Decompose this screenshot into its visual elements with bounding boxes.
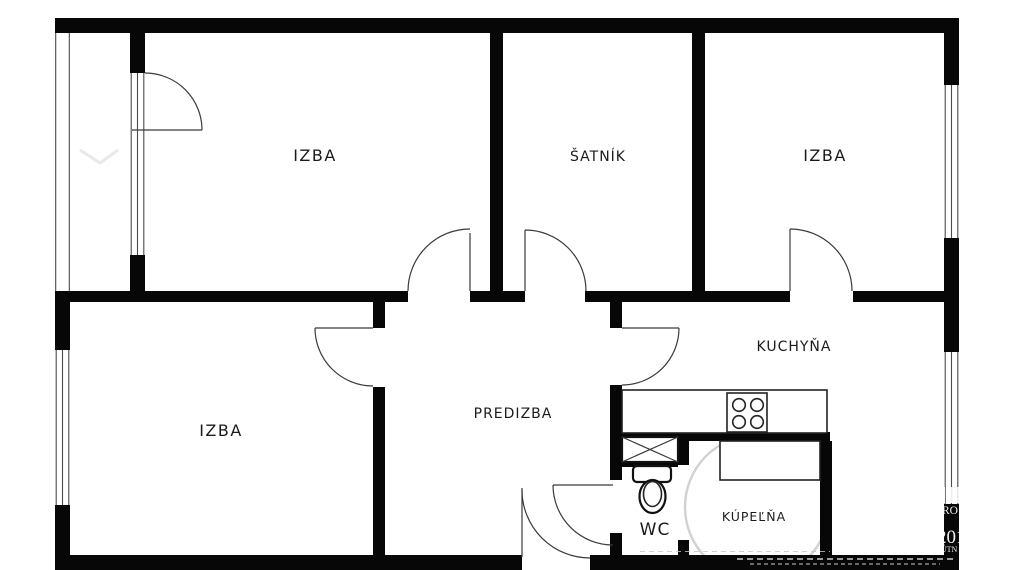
wall-balcony-bottom — [130, 255, 145, 292]
wall-satnik-izba — [692, 33, 705, 302]
bathtub-icon — [720, 441, 820, 480]
fixtures — [622, 390, 827, 513]
interior-walls — [55, 33, 959, 555]
wall-wc-bath-bottom — [678, 540, 689, 555]
wall-wc-bath-top — [678, 441, 689, 465]
window-izba-bottom-left — [55, 350, 70, 505]
satnik-door-swing — [525, 230, 586, 291]
watermark-scribble — [80, 150, 118, 163]
wall-exterior-bottom-right — [590, 555, 959, 570]
wall-main-seg1 — [55, 291, 408, 302]
room-label-izba-bottom-left: IZBA — [199, 421, 243, 440]
toilet-icon — [633, 466, 671, 513]
wall-izba-bl-bottom — [373, 387, 385, 555]
room-label-kuchyna: KUCHYŇA — [757, 338, 832, 355]
shaft-icon — [622, 437, 678, 462]
wall-exterior-bottom-left — [55, 555, 522, 570]
floorplan-drawing: IZBA ŠATNÍK IZBA IZBA PREDIZBA KUCHYŇA W… — [0, 0, 1011, 570]
wall-izba-satnik — [490, 33, 503, 302]
window-izba-top-right — [944, 85, 959, 238]
kitchen-door-swing — [622, 328, 679, 385]
wall-main-seg4 — [853, 291, 959, 302]
room-label-izba-top-left: IZBA — [293, 146, 337, 165]
window-balcony-door-glass — [130, 73, 145, 255]
room-label-satnik: ŠATNÍK — [570, 147, 626, 165]
watermark-glyph-bar — [940, 487, 945, 503]
room-label-wc: WC — [640, 520, 671, 540]
stove-icon — [727, 393, 767, 432]
wall-bath-right — [820, 441, 832, 555]
room-label-kupelna: KÚPEĽŇA — [722, 509, 786, 524]
watermark-text-3: ĽÚTN — [936, 544, 958, 554]
izba-bottom-left-door-swing — [315, 328, 373, 386]
wall-izba-bl-top — [373, 300, 385, 328]
wall-hall-kitchen-bottom — [610, 533, 622, 555]
room-label-izba-top-right: IZBA — [803, 146, 847, 165]
izba-top-left-door-swing — [408, 229, 470, 291]
kitchen-counter-icon — [622, 390, 827, 433]
watermark-glyph-bar — [954, 487, 960, 503]
wc-door-swing — [553, 485, 613, 545]
floorplan-canvas: IZBA ŠATNÍK IZBA IZBA PREDIZBA KUCHYŇA W… — [0, 0, 1011, 570]
wall-exterior-top — [55, 18, 959, 33]
wall-hall-kitchen-top — [610, 300, 622, 328]
watermark-glyph-bar — [948, 487, 952, 503]
entrance-door-swing — [522, 488, 590, 558]
window-kitchen — [944, 352, 959, 504]
watermark-text-1: RO — [942, 505, 958, 517]
room-label-predizba: PREDIZBA — [474, 406, 553, 422]
balcony-railing — [56, 33, 70, 291]
wall-balcony-top — [130, 33, 145, 73]
izba-top-right-door-swing — [790, 229, 852, 291]
